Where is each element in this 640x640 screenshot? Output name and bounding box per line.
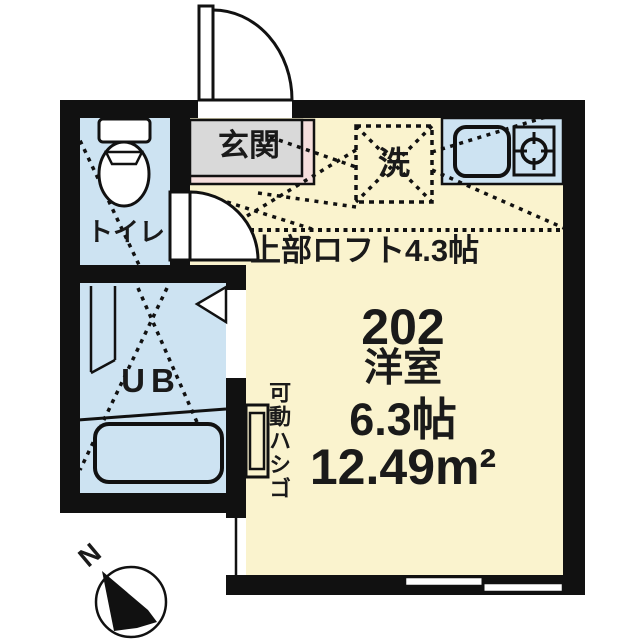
kitchen-counter <box>442 118 563 184</box>
toilet-icon <box>99 119 150 206</box>
entrance-label: 玄関 <box>196 130 302 163</box>
loft-label: 上部ロフト4.3帖 <box>250 235 530 268</box>
unit-number: 202 <box>258 301 548 354</box>
bathtub-icon <box>95 424 222 482</box>
entrance-door-icon <box>199 6 292 100</box>
room-size: 6.3帖 <box>258 396 548 443</box>
north-arrow-icon <box>96 567 166 637</box>
kitchen-sink-icon <box>455 127 509 176</box>
entrance-opening <box>198 100 292 118</box>
room-type: 洋室 <box>258 349 548 390</box>
window-left <box>226 518 246 575</box>
washer-label: 洗 <box>370 147 418 181</box>
bath-label: UB <box>103 364 199 399</box>
floor-plan: 玄関 洗 上部ロフト4.3帖 トイレ UB 202 洋室 6.3帖 12.49m… <box>0 0 640 640</box>
bath-door-opening <box>226 290 246 378</box>
toilet-label: トイレ <box>80 219 172 246</box>
room-area: 12.49m² <box>258 441 548 494</box>
ladder-label: 可動ハシゴ <box>267 381 290 506</box>
